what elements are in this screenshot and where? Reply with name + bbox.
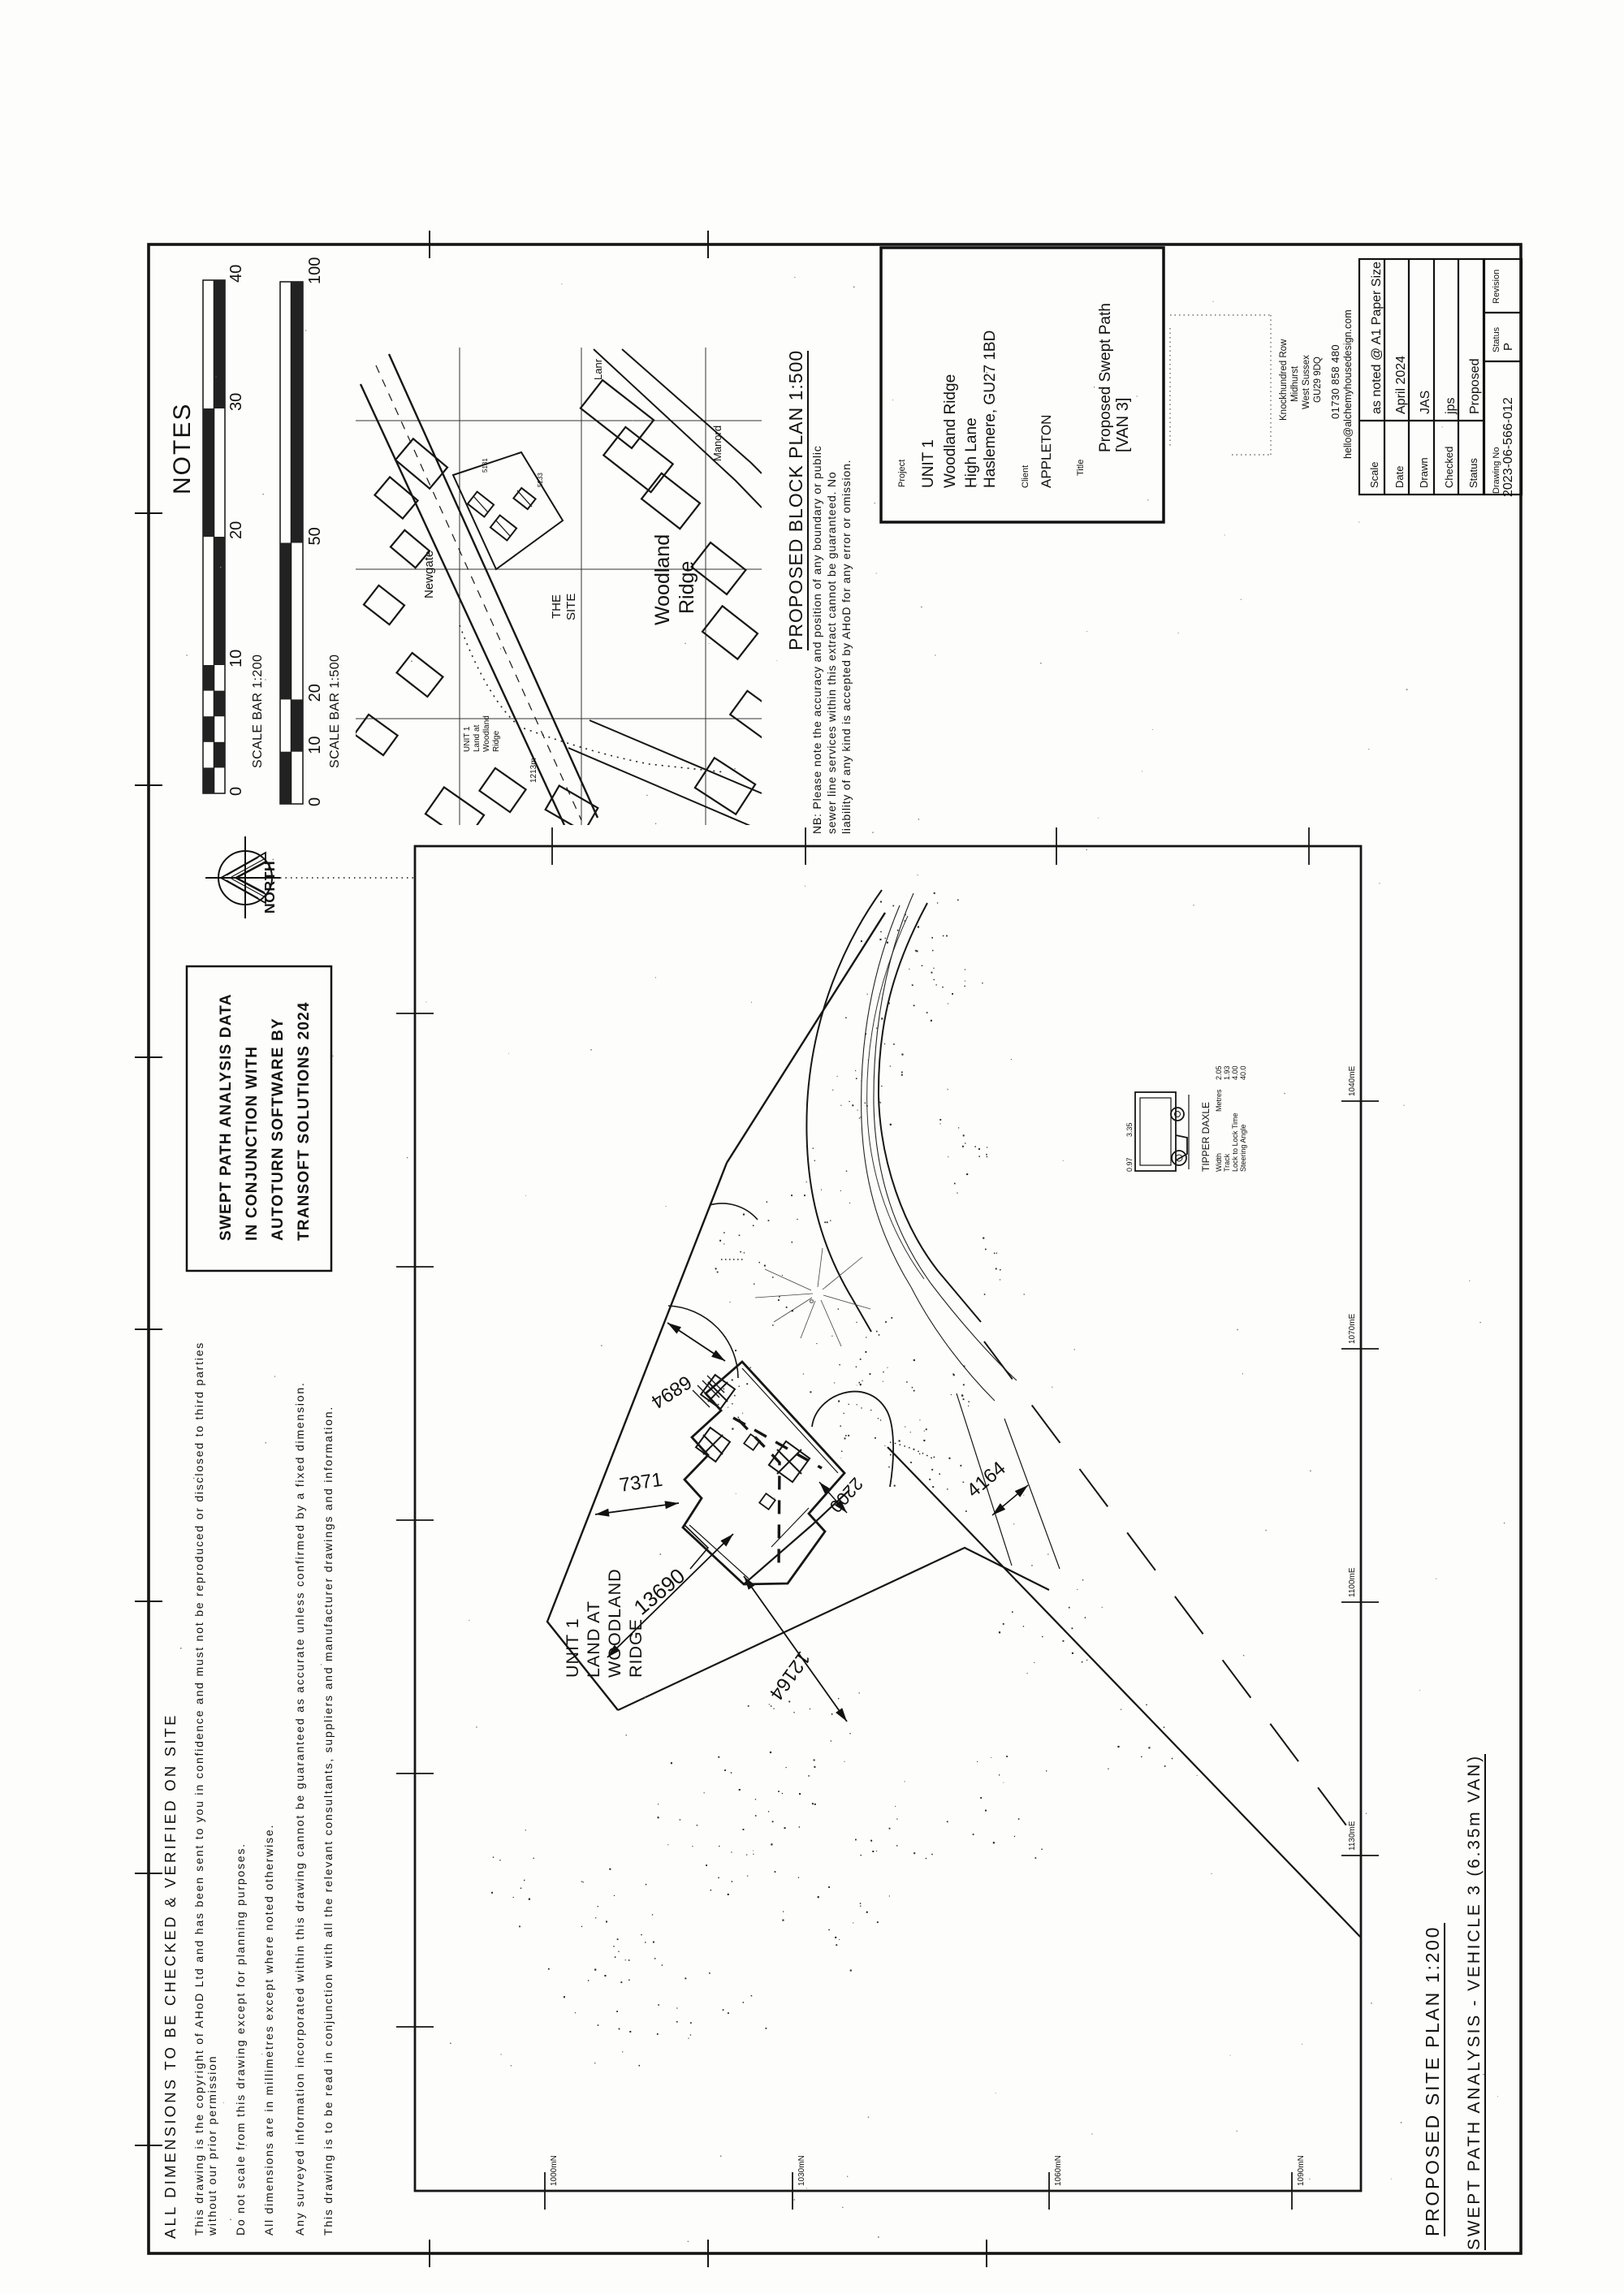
svg-text:Any surveyed information incor: Any surveyed information incorporated wi… <box>293 1381 306 2236</box>
svg-text:40: 40 <box>227 265 245 283</box>
svg-text:jps: jps <box>1444 398 1458 415</box>
svg-text:SITE: SITE <box>564 594 578 620</box>
svg-text:West Sussex: West Sussex <box>1302 355 1311 409</box>
svg-text:AUTOTURN SOFTWARE BY: AUTOTURN SOFTWARE BY <box>270 1017 287 1241</box>
svg-text:PROPOSED SITE PLAN 1:200: PROPOSED SITE PLAN 1:200 <box>1422 1925 1443 2236</box>
svg-text:UNIT 1: UNIT 1 <box>463 726 472 752</box>
svg-text:Status: Status <box>1467 458 1479 488</box>
svg-text:50: 50 <box>306 527 324 545</box>
svg-text:Steering Angle: Steering Angle <box>1239 1124 1247 1172</box>
svg-text:GU29 9DQ: GU29 9DQ <box>1313 356 1323 403</box>
svg-text:1060mN: 1060mN <box>1054 2155 1063 2186</box>
svg-text:SCALE BAR 1:500: SCALE BAR 1:500 <box>328 655 342 768</box>
svg-text:TIPPER DAXLE: TIPPER DAXLE <box>1200 1102 1212 1172</box>
svg-text:sewer line services within thi: sewer line services within this extract … <box>825 471 838 834</box>
svg-text:hello@alchemyhousedesign.com: hello@alchemyhousedesign.com <box>1342 309 1354 459</box>
svg-text:30: 30 <box>227 393 245 411</box>
svg-text:Project: Project <box>897 460 907 487</box>
svg-text:Newgate: Newgate <box>422 551 436 598</box>
svg-text:40.0: 40.0 <box>1239 1065 1247 1080</box>
svg-text:This drawing is to be read in: This drawing is to be read in conjunctio… <box>322 1406 335 2236</box>
svg-text:1213m: 1213m <box>529 758 538 783</box>
svg-text:JAS: JAS <box>1419 391 1432 414</box>
svg-text:LAND AT: LAND AT <box>584 1601 603 1678</box>
svg-text:SCALE BAR 1:200: SCALE BAR 1:200 <box>251 655 265 768</box>
svg-text:SWEPT PATH ANALYSIS - VEHICLE: SWEPT PATH ANALYSIS - VEHICLE 3 (6.35m V… <box>1465 1754 1484 2250</box>
svg-text:Track: Track <box>1223 1153 1231 1172</box>
svg-text:2.05: 2.05 <box>1215 1065 1223 1080</box>
svg-text:Client: Client <box>1021 465 1030 488</box>
svg-text:NOTES: NOTES <box>169 403 196 495</box>
svg-text:without our prior permission: without our prior permission <box>205 2055 218 2236</box>
svg-text:1100mE: 1100mE <box>1348 1567 1357 1597</box>
svg-text:RIDGE: RIDGE <box>626 1618 646 1678</box>
svg-text:ALL DIMENSIONS TO BE CHECK: ALL DIMENSIONS TO BE CHECKED & VERIFIED … <box>162 1713 179 2239</box>
svg-text:Midhurst: Midhurst <box>1290 365 1300 402</box>
svg-text:0.97: 0.97 <box>1125 1157 1134 1172</box>
svg-text:1.93: 1.93 <box>1223 1065 1231 1080</box>
svg-text:NB: Please note the accuracy: NB: Please note the accuracy and positio… <box>810 445 823 834</box>
svg-text:Revision: Revision <box>1492 270 1501 304</box>
svg-text:Checked: Checked <box>1443 447 1455 488</box>
svg-text:2023-06-566-012: 2023-06-566-012 <box>1501 397 1515 497</box>
svg-text:Woodland: Woodland <box>482 715 491 752</box>
svg-text:SWEPT PATH ANALYSIS DATA: SWEPT PATH ANALYSIS DATA <box>218 993 235 1241</box>
svg-text:IN CONJUNCTION WITH: IN CONJUNCTION WITH <box>244 1046 261 1241</box>
svg-text:100: 100 <box>306 257 324 284</box>
svg-text:Ridge: Ridge <box>492 730 501 752</box>
svg-text:0: 0 <box>306 797 324 806</box>
svg-text:Land at: Land at <box>473 724 482 752</box>
svg-text:20: 20 <box>227 521 245 539</box>
svg-text:as noted @ A1 Paper Size: as noted @ A1 Paper Size <box>1370 261 1384 414</box>
svg-text:WOODLAND: WOODLAND <box>605 1568 624 1678</box>
svg-text:1090mN: 1090mN <box>1297 2155 1306 2186</box>
svg-text:10: 10 <box>227 650 245 667</box>
svg-text:o: o <box>807 1299 815 1303</box>
svg-text:4.00: 4.00 <box>1231 1065 1239 1080</box>
svg-text:Date: Date <box>1393 466 1406 488</box>
svg-text:Woodland Ridge: Woodland Ridge <box>942 374 959 488</box>
svg-text:1040mE: 1040mE <box>1348 1065 1357 1096</box>
svg-text:PROPOSED BLOCK PLAN 1:500: PROPOSED BLOCK PLAN 1:500 <box>785 350 806 650</box>
svg-text:Proposed: Proposed <box>1468 359 1482 415</box>
svg-text:UNIT 1: UNIT 1 <box>920 439 937 488</box>
svg-text:liability of any kind is accep: liability of any kind is accepted by AHo… <box>840 460 853 834</box>
svg-text:P: P <box>1501 343 1515 351</box>
svg-text:Title: Title <box>1076 460 1086 476</box>
svg-text:1000mN: 1000mN <box>550 2155 559 2186</box>
svg-text:Haslemere, GU27 1BD: Haslemere, GU27 1BD <box>982 330 999 488</box>
svg-text:Do not scale from this drawing: Do not scale from this drawing except fo… <box>234 1843 247 2236</box>
svg-text:Woodland: Woodland <box>651 534 674 625</box>
svg-text:APPLETON: APPLETON <box>1039 415 1054 488</box>
svg-text:Ridge: Ridge <box>676 561 698 614</box>
svg-text:Lanr: Lanr <box>592 358 604 380</box>
svg-text:Knockhundred Row: Knockhundred Row <box>1279 339 1289 421</box>
svg-text:Drawing No: Drawing No <box>1492 447 1501 494</box>
svg-text:Drawn: Drawn <box>1418 457 1430 488</box>
svg-text:Metres: Metres <box>1215 1089 1223 1112</box>
svg-text:High Lane: High Lane <box>963 417 980 488</box>
svg-text:5233: 5233 <box>537 473 544 487</box>
svg-text:All dimensions are in millimet: All dimensions are in millimetres except… <box>262 1824 275 2236</box>
svg-text:01730 858 480: 01730 858 480 <box>1329 344 1341 419</box>
svg-text:0: 0 <box>227 787 245 796</box>
svg-text:Proposed Swept Path: Proposed Swept Path <box>1097 303 1114 452</box>
svg-text:Width: Width <box>1215 1153 1223 1172</box>
svg-text:TRANSOFT SOLUTIONS 2024: TRANSOFT SOLUTIONS 2024 <box>296 1001 313 1241</box>
svg-text:Status: Status <box>1492 326 1501 352</box>
svg-text:5131: 5131 <box>482 458 489 473</box>
svg-text:UNIT 1: UNIT 1 <box>563 1618 582 1678</box>
svg-text:[VAN 3]: [VAN 3] <box>1114 398 1132 452</box>
svg-text:THE: THE <box>550 594 564 619</box>
svg-text:Lock to Lock Time: Lock to Lock Time <box>1231 1112 1239 1172</box>
svg-text:10: 10 <box>306 736 324 754</box>
svg-text:This drawing is the copyright: This drawing is the copyright of AHoD Lt… <box>192 1341 205 2236</box>
svg-text:April 2024: April 2024 <box>1394 356 1408 414</box>
svg-text:1030mN: 1030mN <box>797 2155 806 2186</box>
svg-text:NORTH: NORTH <box>261 861 278 914</box>
svg-text:20: 20 <box>306 684 324 702</box>
svg-text:Manord: Manord <box>711 426 723 461</box>
svg-text:1070mE: 1070mE <box>1348 1313 1357 1344</box>
svg-text:Scale: Scale <box>1368 461 1380 488</box>
svg-text:1130mE: 1130mE <box>1348 1821 1357 1851</box>
svg-text:3.35: 3.35 <box>1125 1122 1134 1137</box>
